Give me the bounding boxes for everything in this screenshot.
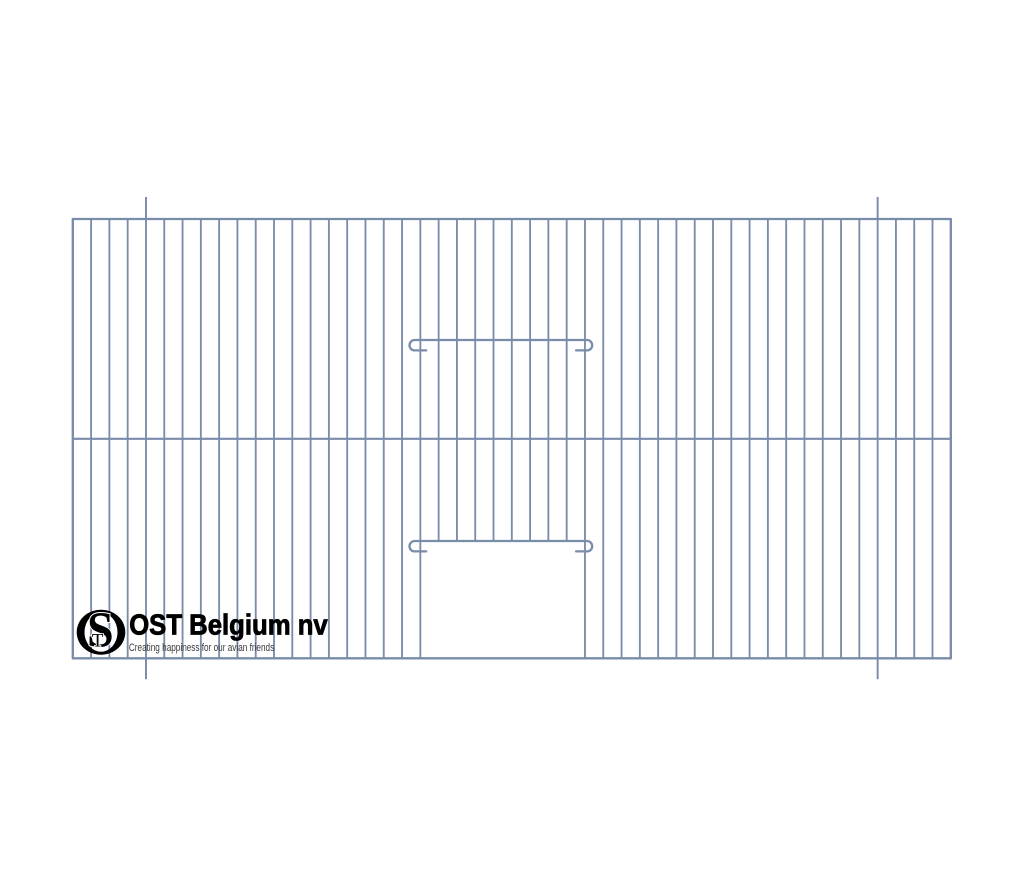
svg-text:T: T: [92, 631, 104, 652]
svg-text:OST Belgium nv: OST Belgium nv: [129, 610, 328, 642]
svg-text:Creating happiness for our avi: Creating happiness for our avian friends: [129, 642, 274, 654]
